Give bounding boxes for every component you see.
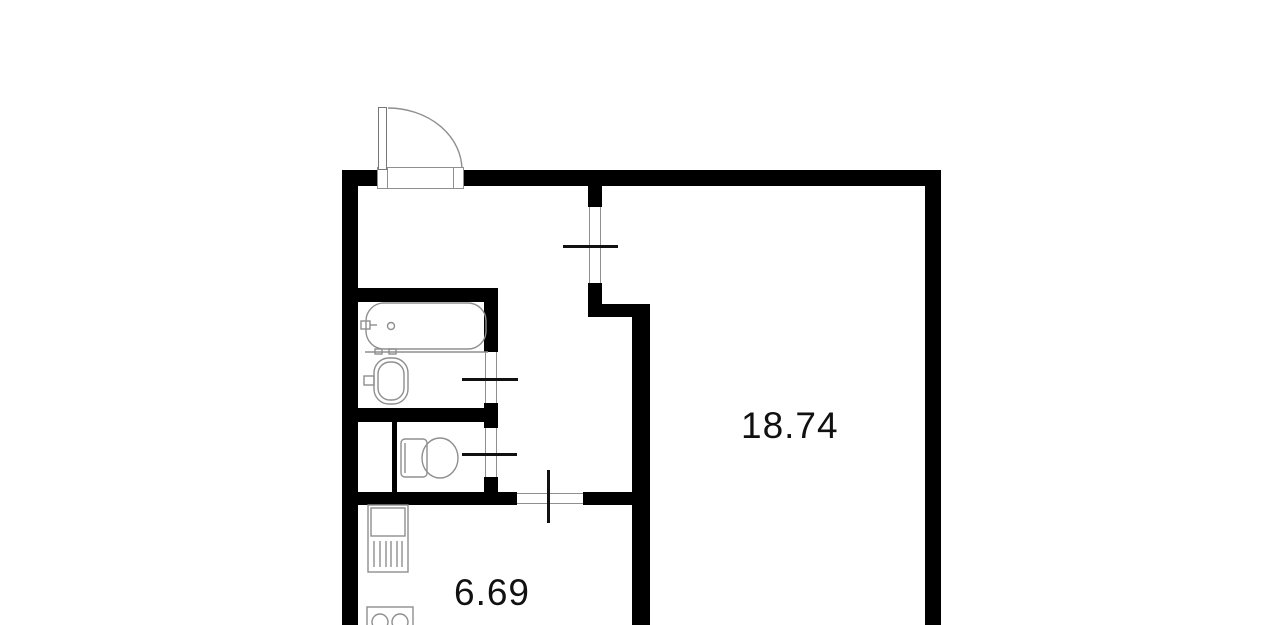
kitchen-sink-icon — [368, 505, 408, 572]
entry-door-frame-line-left — [387, 168, 388, 188]
kitchen-door-leaf-line — [547, 470, 550, 523]
entry-door-leaf — [378, 107, 387, 170]
floor-plan: 18.74 6.69 — [0, 0, 1280, 625]
kitchen-doorway-jamb-b — [517, 503, 583, 504]
stove-icon — [367, 607, 413, 625]
bathroom-door-leaf-line — [462, 378, 518, 381]
toilet-icon — [401, 438, 458, 478]
bathtub-icon — [361, 303, 488, 354]
living-door-leaf-line — [563, 245, 618, 248]
kitchen-area-label: 6.69 — [454, 574, 530, 611]
toilet-door-leaf-line — [462, 453, 517, 456]
kitchen-doorway-jamb-a — [517, 493, 583, 494]
living-room-area-label: 18.74 — [741, 407, 839, 444]
entry-door-frame — [377, 167, 464, 189]
washbasin-icon — [364, 358, 408, 404]
entry-door-swing-arc — [388, 108, 462, 170]
entry-door-frame-line-right — [453, 168, 454, 188]
fixtures-layer — [0, 0, 1280, 625]
